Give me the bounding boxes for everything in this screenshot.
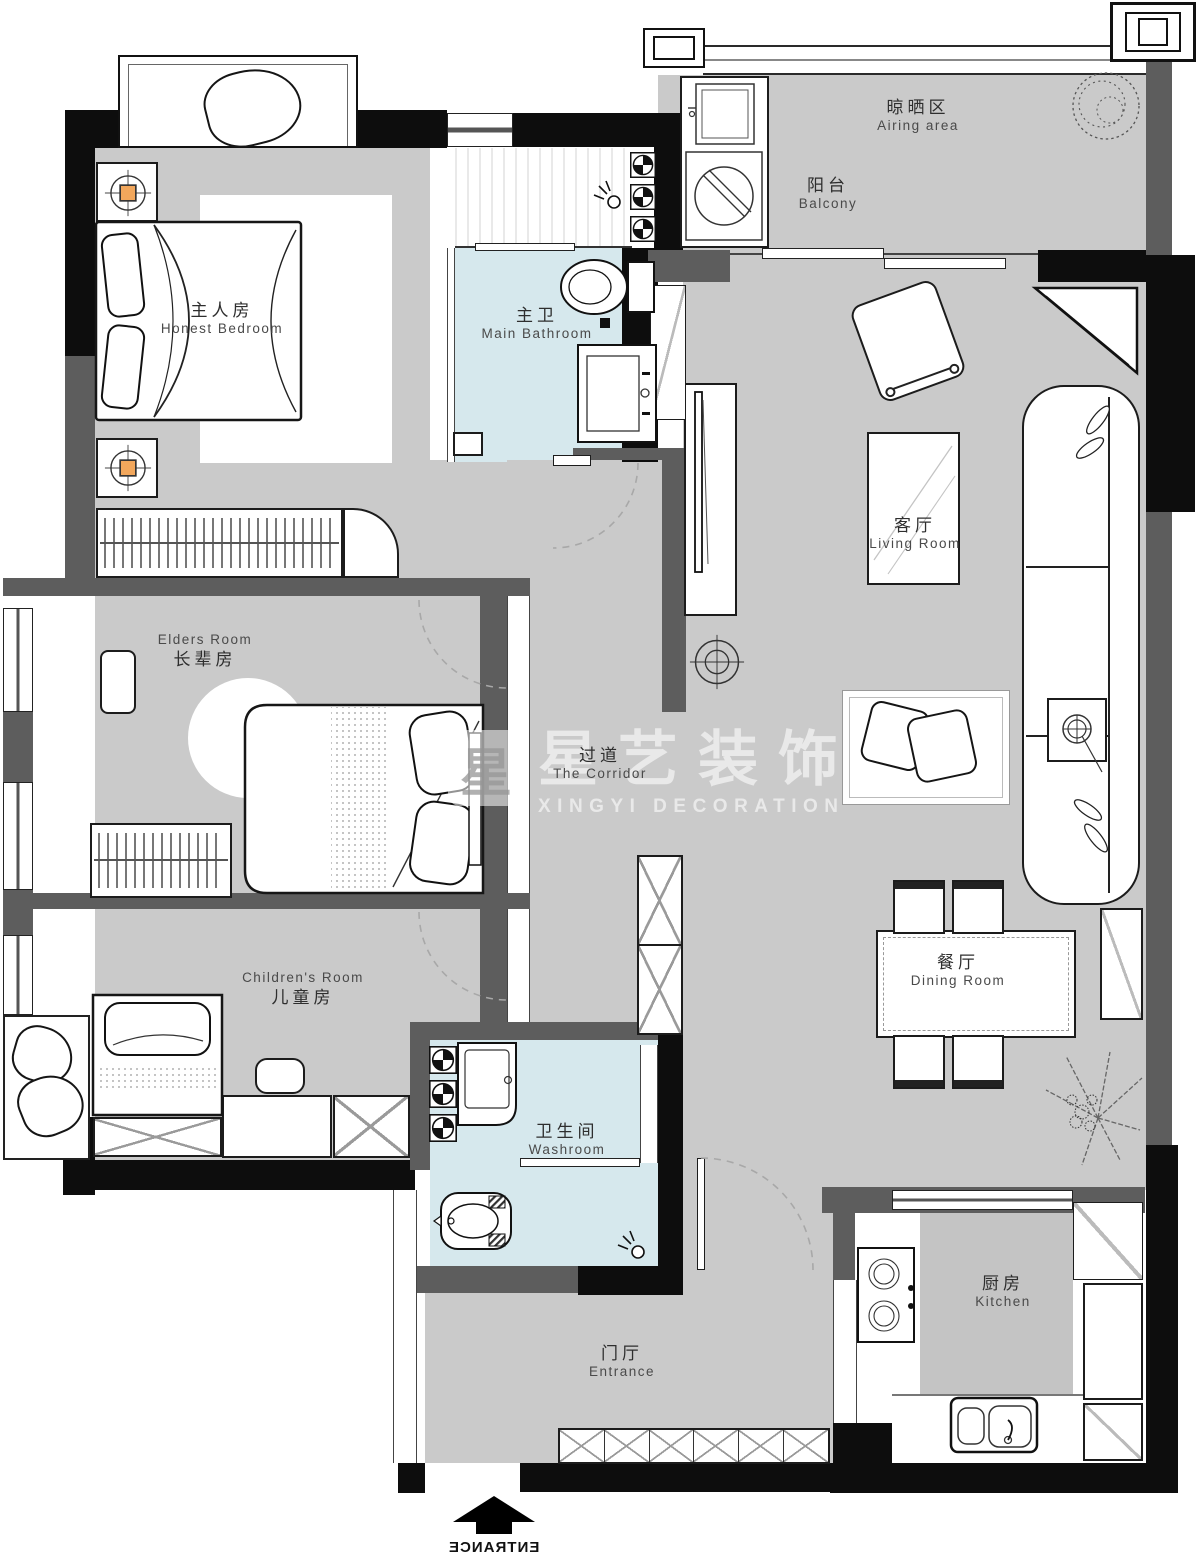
label-living-room: 客厅 Living Room (869, 515, 961, 553)
wall-segment (1146, 512, 1172, 1145)
pillar-core (1138, 18, 1168, 46)
label-zh: 过道 (553, 745, 647, 766)
wall-segment (355, 110, 447, 148)
under-bed-storage (93, 1117, 222, 1157)
dining-chair (893, 1035, 945, 1089)
x-pattern (649, 1430, 694, 1462)
wall-niche (650, 285, 686, 420)
door-opening-children (507, 909, 530, 1022)
label-washroom: 卫生间 Washroom (529, 1121, 606, 1159)
wall-segment (1146, 1145, 1178, 1470)
armchair-arm (948, 362, 961, 375)
wall-segment (658, 1035, 683, 1295)
label-zh: 儿童房 (242, 987, 364, 1008)
label-airing-area: 晾晒区 Airing area (877, 97, 959, 135)
children-cabinet (333, 1095, 410, 1158)
entrance-arrow-stem (476, 1522, 512, 1534)
utility-shaft-icon (631, 153, 656, 178)
label-zh: 主卫 (481, 305, 592, 326)
floor-master-door-zone (430, 460, 507, 578)
label-zh: 主人房 (161, 300, 283, 321)
label-main-bathroom: 主卫 Main Bathroom (481, 305, 592, 343)
label-dining-room: 餐厅 Dining Room (911, 952, 1006, 990)
kitchen-corner-unit (1083, 1403, 1143, 1461)
sliding-door-panel (884, 258, 1006, 269)
x-pattern (738, 1430, 783, 1462)
bay-sill-children (3, 1015, 90, 1160)
label-elders-room: Elders Room 长辈房 (158, 632, 253, 670)
label-entrance: 门厅 Entrance (589, 1343, 655, 1381)
sliding-door-panel (762, 248, 884, 259)
door-frame-block (453, 432, 483, 456)
wall-segment (513, 113, 683, 147)
sliding-door-panel (475, 243, 575, 251)
fridge (1083, 1283, 1143, 1400)
dining-chair (952, 1035, 1004, 1089)
wall-segment (3, 890, 33, 935)
door-leaf (697, 1158, 705, 1270)
wall-segment (648, 250, 730, 282)
label-en: Main Bathroom (481, 326, 592, 343)
washroom-door (640, 1045, 658, 1163)
stool (255, 1058, 305, 1094)
x-pattern (693, 1430, 738, 1462)
wall-outer-strip (393, 1190, 417, 1463)
label-corridor: 过道 The Corridor (553, 745, 647, 783)
floor-laundry (455, 148, 632, 248)
sofa (1022, 385, 1140, 905)
living-rug (842, 690, 1010, 805)
door-leaf (553, 455, 591, 466)
label-en: Elders Room (158, 632, 253, 649)
sliding-door-panel (520, 1158, 640, 1167)
entrance-arrow-icon (453, 1496, 535, 1522)
label-zh: 餐厅 (911, 952, 1006, 973)
dining-chair (952, 880, 1004, 934)
label-en: The Corridor (553, 766, 647, 783)
x-pattern (639, 946, 681, 1033)
x-pattern (783, 1430, 828, 1462)
wall-segment (520, 1463, 830, 1492)
label-en: Children's Room (242, 970, 364, 987)
wall-segment (480, 596, 507, 893)
pillow (905, 707, 979, 784)
label-en: Kitchen (975, 1294, 1031, 1311)
label-en: Honest Bedroom (161, 321, 283, 338)
wall-segment (1146, 60, 1172, 255)
wall-segment (833, 1423, 892, 1463)
label-zh: 长辈房 (158, 649, 253, 670)
label-zh: 客厅 (869, 515, 961, 536)
label-zh: 门厅 (589, 1343, 655, 1364)
wardrobe-rail-bar (94, 859, 228, 861)
shoe-cabinet (558, 1428, 830, 1464)
pillar (1110, 2, 1196, 62)
label-children-room: Children's Room 儿童房 (242, 970, 364, 1008)
side-table (1047, 698, 1107, 762)
dining-chair (893, 880, 945, 934)
label-zh: 晾晒区 (877, 97, 959, 118)
counter-edge (892, 1394, 1083, 1396)
label-en: Balcony (799, 196, 858, 213)
dining-cabinet (1100, 908, 1143, 1020)
children-desk (222, 1095, 332, 1158)
wall-segment (63, 1160, 415, 1190)
elders-round-rug (188, 678, 308, 798)
kitchen-counter-corner (1073, 1202, 1143, 1280)
tv-cabinet (684, 383, 737, 616)
label-zh: 卫生间 (529, 1121, 606, 1142)
sofa-cushions (1026, 397, 1110, 893)
wall-segment (65, 148, 95, 356)
wall-segment (65, 110, 120, 148)
elders-wardrobe (90, 823, 232, 898)
wall-segment (400, 1266, 578, 1293)
wardrobe-rail-bar (100, 542, 339, 544)
wall-segment (410, 1022, 430, 1170)
label-en: Washroom (529, 1142, 606, 1159)
label-balcony: 阳台 Balcony (799, 175, 858, 213)
label-master-bedroom: 主人房 Honest Bedroom (161, 300, 283, 338)
floor-main-bathroom (455, 248, 622, 462)
utility-shaft-icon (631, 185, 656, 210)
bay-window-master (118, 55, 358, 148)
label-en: Living Room (869, 536, 961, 553)
wall-segment (410, 1022, 658, 1040)
floor-plan: 星 星艺装饰 XINGYI DECORATION 主人房 Honest Bedr… (0, 0, 1200, 1555)
kitchen-door-opening (833, 1280, 857, 1423)
coffee-table (867, 432, 960, 585)
window (447, 113, 513, 147)
window (3, 608, 33, 712)
entrance-marker-text: ENTRANCE (448, 1539, 539, 1555)
wall-segment (3, 712, 33, 782)
wall-segment (830, 1463, 1178, 1493)
pillar-inner (653, 36, 695, 60)
wall-segment (480, 909, 507, 1022)
wall-thin (447, 248, 455, 462)
wall-segment (398, 1463, 425, 1493)
label-zh: 阳台 (799, 175, 858, 196)
x-pattern (95, 1119, 220, 1155)
wall-segment (662, 448, 686, 712)
wall-segment (1038, 250, 1146, 282)
master-wardrobe (96, 508, 343, 578)
x-pattern (335, 1097, 408, 1156)
wall-segment (578, 1266, 683, 1295)
utility-shaft-icon (631, 217, 656, 242)
x-pattern (604, 1430, 649, 1462)
balcony-parapet (703, 45, 1146, 75)
x-pattern (560, 1430, 604, 1462)
nightstand (96, 438, 158, 498)
label-zh: 厨房 (975, 1273, 1031, 1294)
kitchen-window (892, 1190, 1073, 1210)
window (3, 782, 33, 890)
nightstand (100, 650, 136, 714)
pillar-inner (1125, 12, 1181, 52)
floor-hall-passage (683, 1190, 833, 1295)
wall-segment (3, 893, 530, 909)
wall-segment (3, 578, 530, 596)
entrance-marker: ENTRANCE (446, 1496, 542, 1555)
wall-segment (1146, 255, 1195, 512)
label-en: Dining Room (911, 973, 1006, 990)
label-en: Airing area (877, 118, 959, 135)
label-kitchen: 厨房 Kitchen (975, 1273, 1031, 1311)
wall-segment (65, 356, 95, 578)
window (3, 935, 33, 1015)
nightstand (96, 162, 158, 222)
wall-segment (833, 1213, 855, 1280)
pillar (643, 28, 705, 68)
corridor-cabinet (637, 855, 683, 1035)
x-pattern (639, 857, 681, 946)
door-opening-elders (507, 596, 530, 893)
wall-segment (654, 147, 683, 253)
label-en: Entrance (589, 1364, 655, 1381)
